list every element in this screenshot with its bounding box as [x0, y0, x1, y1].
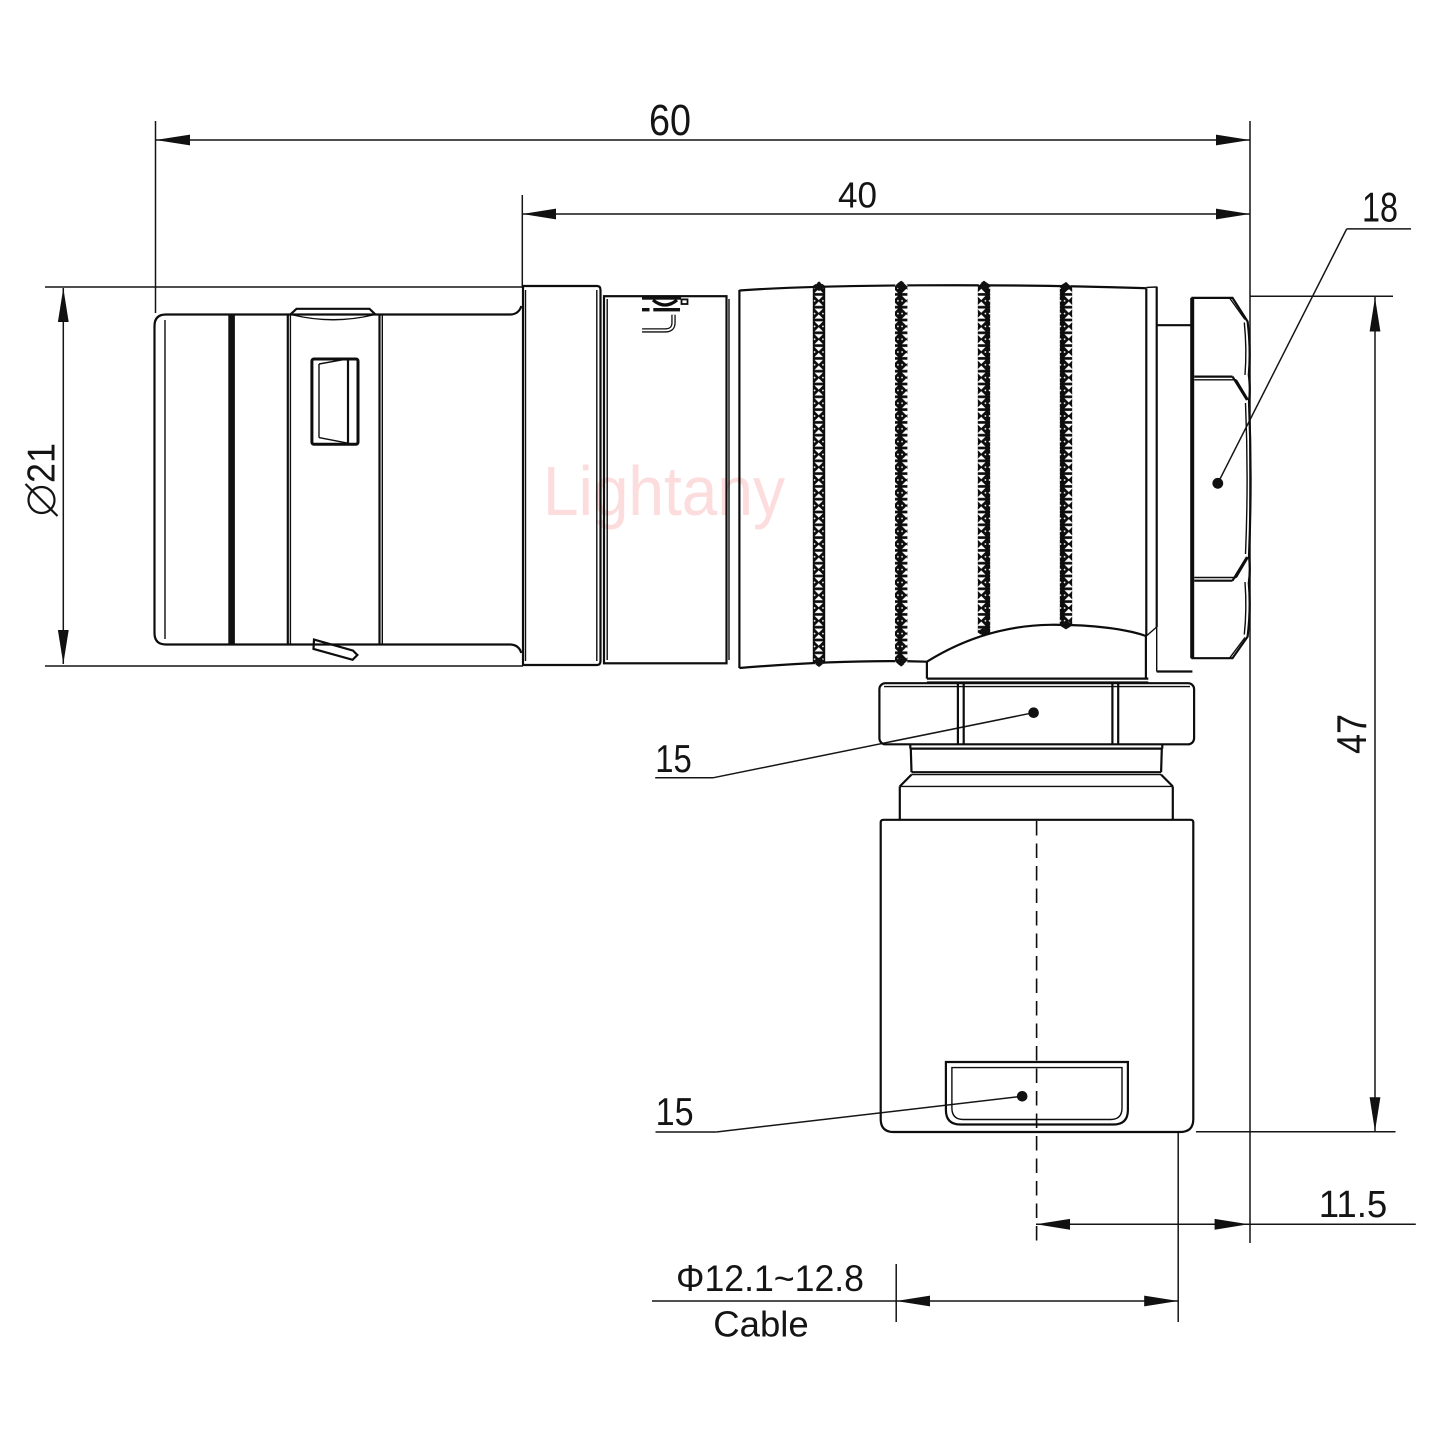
svg-text:15: 15	[655, 738, 692, 781]
svg-text:40: 40	[838, 175, 877, 216]
svg-text:15: 15	[656, 1091, 694, 1134]
svg-text:47: 47	[1328, 714, 1375, 754]
svg-text:11.5: 11.5	[1319, 1184, 1388, 1226]
svg-text:Cable: Cable	[713, 1304, 809, 1345]
svg-text:60: 60	[649, 96, 691, 145]
svg-text:Φ12.1~12.8: Φ12.1~12.8	[676, 1258, 864, 1299]
svg-text:18: 18	[1362, 184, 1398, 231]
svg-text:Lightany: Lightany	[543, 452, 785, 530]
svg-text:21: 21	[21, 443, 64, 483]
